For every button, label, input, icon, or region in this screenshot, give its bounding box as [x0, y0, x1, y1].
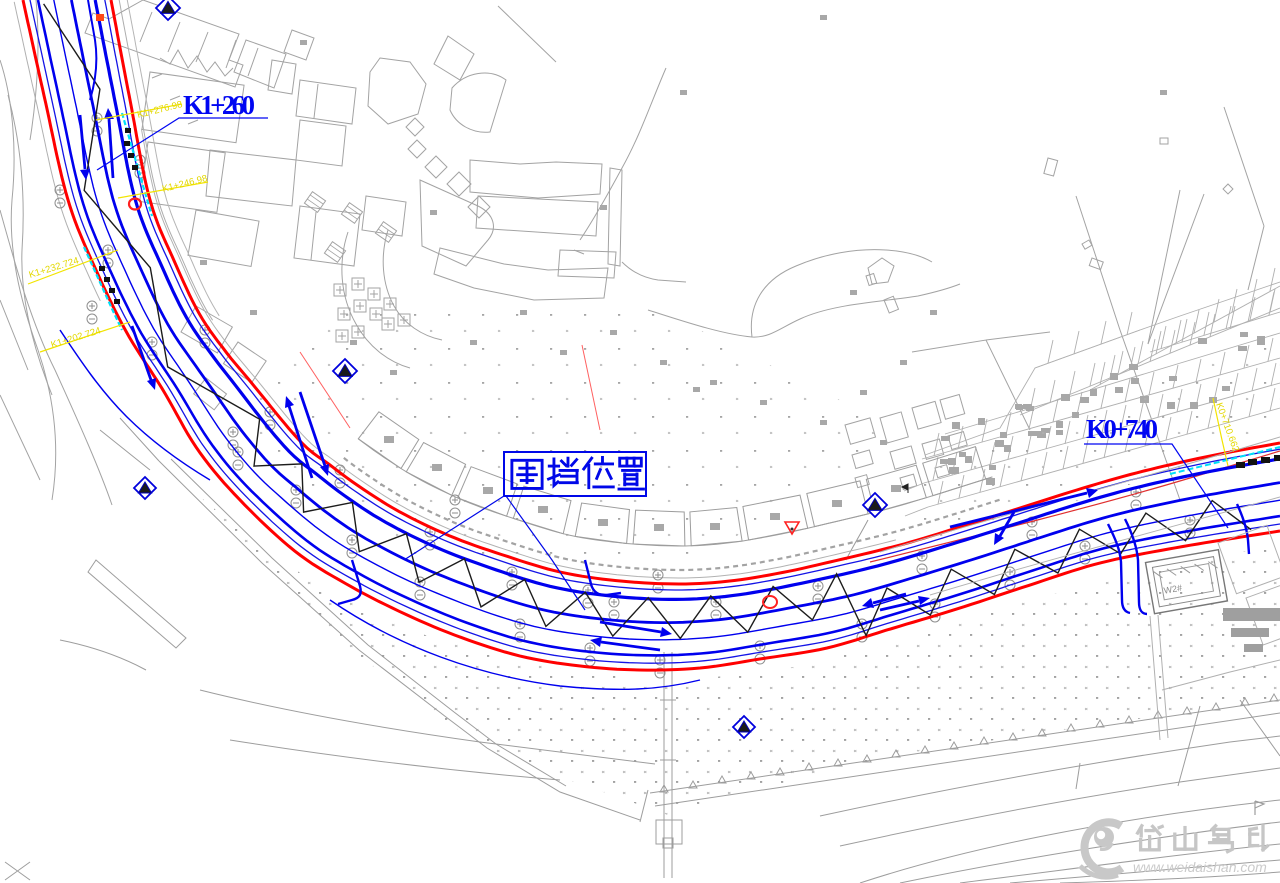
- svg-text:K1+260: K1+260: [183, 90, 255, 120]
- svg-text:www.weidaishan.com: www.weidaishan.com: [1133, 859, 1267, 875]
- svg-text:K0+740: K0+740: [1086, 414, 1158, 444]
